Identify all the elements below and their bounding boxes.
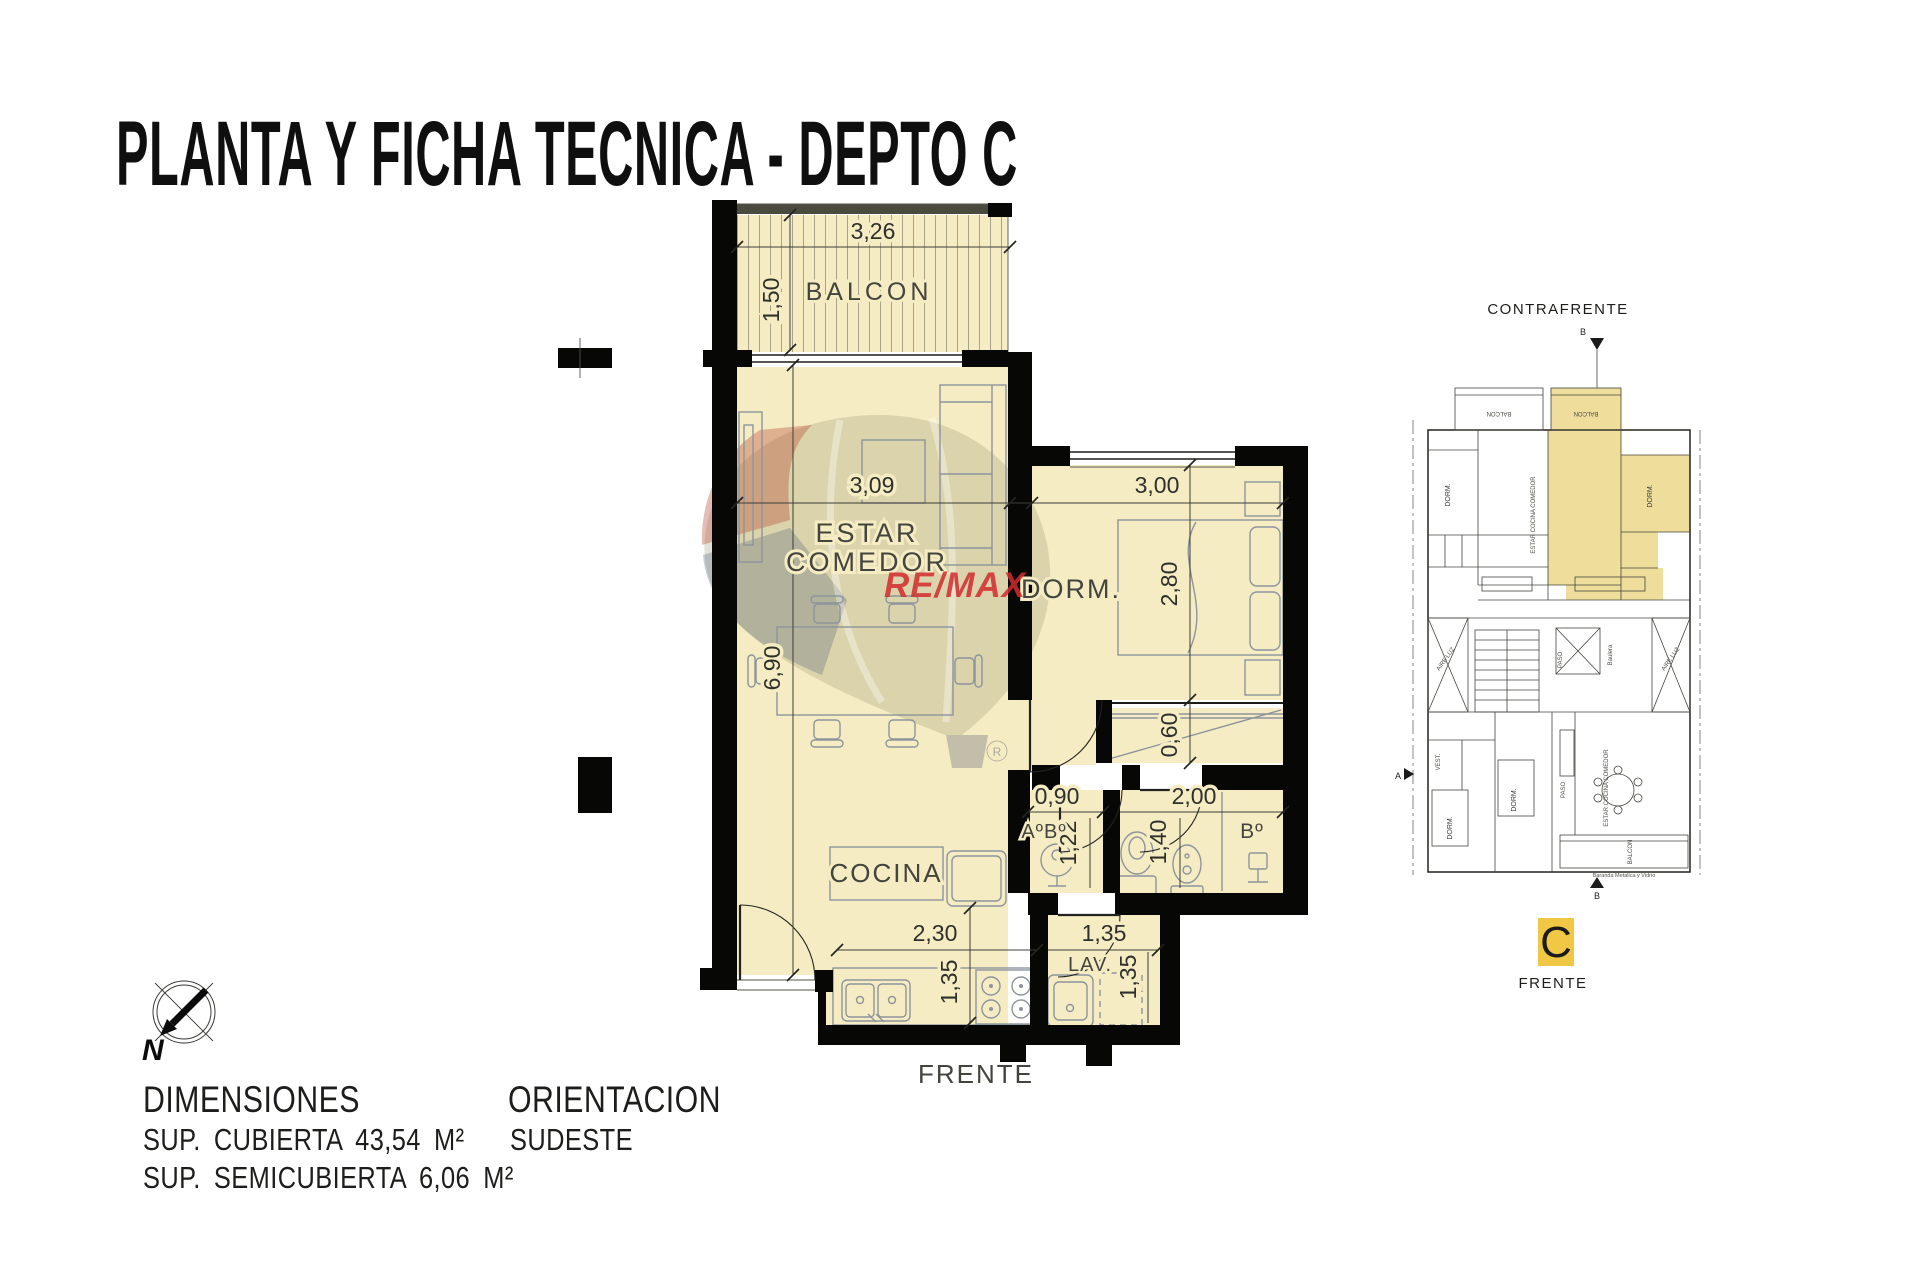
orientation-title: ORIENTACION bbox=[508, 1079, 721, 1121]
site-top-label: CONTRAFRENTE bbox=[1487, 301, 1628, 318]
site-label-balcon: BALCON bbox=[1628, 840, 1634, 865]
unit-c-highlight bbox=[1548, 430, 1690, 600]
dim-closet-depth: 0,60 bbox=[1156, 713, 1182, 758]
site-label-dorm: DORM. bbox=[1511, 788, 1518, 811]
unit-c-balcony-highlight bbox=[1551, 388, 1621, 430]
label-bathroom: Bº bbox=[1240, 820, 1264, 843]
site-label-aire-luz: AIRE LUZ bbox=[1661, 646, 1682, 672]
site-plan: CONTRAFRENTE B bbox=[1380, 240, 1710, 1020]
main-floor-plan: 3,26 1,50 3,09 3,00 6,90 2,80 0,60 0,90 … bbox=[540, 180, 1340, 1100]
remax-brand: RE/MAX bbox=[884, 566, 1028, 605]
section-marker-icon bbox=[1590, 338, 1604, 350]
dim-bedroom-width: 3,00 bbox=[1135, 472, 1180, 498]
dim-laundry-width: 1,35 bbox=[1082, 920, 1127, 946]
site-label-baranda: Baranda Metalica y Vidrio bbox=[1593, 873, 1656, 879]
north-arrow-icon bbox=[172, 990, 206, 1024]
section-marker-bottom: B bbox=[1594, 891, 1600, 901]
site-label-estar: ESTAR COCINA COMEDOR bbox=[1531, 476, 1537, 554]
site-label-dorm: DORM. bbox=[1447, 816, 1454, 839]
dim-kitchen-depth: 1,35 bbox=[936, 960, 962, 1005]
dim-living-width: 3,09 bbox=[850, 472, 895, 498]
dim-balcony-depth: 1,50 bbox=[758, 278, 784, 323]
site-label-baulera: Baulera bbox=[1608, 644, 1614, 665]
orientation-value: SUDESTE bbox=[510, 1122, 633, 1158]
side-marker-icon bbox=[1404, 768, 1414, 780]
compass-north-letter: N bbox=[142, 1034, 165, 1067]
dim-bathroom-width: 2,00 bbox=[1172, 783, 1217, 809]
compass: N bbox=[130, 955, 250, 1075]
dim-kitchen-width: 2,30 bbox=[913, 920, 958, 946]
label-balcony: BALCON bbox=[806, 278, 933, 306]
site-label-paso: PASO bbox=[1561, 782, 1567, 799]
site-label-dorm: DORM. bbox=[1445, 483, 1452, 506]
section-marker-top: B bbox=[1580, 327, 1586, 337]
dim-living-length: 6,90 bbox=[759, 646, 785, 691]
site-label-estar: ESTAR COCINA COMEDOR bbox=[1604, 749, 1610, 827]
label-laundry: LAV. bbox=[1068, 954, 1112, 976]
site-label-balcon: BALCON bbox=[1487, 410, 1512, 416]
dim-bedroom-depth: 2,80 bbox=[1156, 562, 1182, 607]
site-label-dorm: DORM. bbox=[1647, 484, 1654, 507]
side-marker: A bbox=[1395, 771, 1401, 781]
label-bedroom: DORM. bbox=[1021, 574, 1121, 604]
sup-cubierta: SUP. CUBIERTA 43,54 M² bbox=[143, 1122, 465, 1158]
dim-balcony-width: 3,26 bbox=[851, 218, 896, 244]
floor-plan-sheet: PLANTA Y FICHA TECNICA - DEPTO C bbox=[0, 0, 1920, 1280]
dim-toilette-width: 0,90 bbox=[1035, 783, 1080, 809]
label-front: FRENTE bbox=[918, 1059, 1034, 1089]
dim-laundry-depth: 1,35 bbox=[1115, 955, 1141, 1000]
sup-semicubierta: SUP. SEMICUBIERTA 6,06 M² bbox=[143, 1160, 514, 1196]
site-label-vest: VEST. bbox=[1436, 753, 1442, 770]
site-bottom-label: FRENTE bbox=[1519, 975, 1588, 992]
dim-bathroom-depth: 1,40 bbox=[1145, 820, 1171, 865]
dimensions-title: DIMENSIONES bbox=[143, 1079, 360, 1121]
balloon-basket-icon bbox=[946, 735, 988, 768]
site-label-paso: PASO bbox=[1558, 652, 1564, 669]
registered-r: R bbox=[993, 745, 1002, 759]
label-kitchen: COCINA bbox=[829, 858, 942, 888]
label-toilette: AºBº bbox=[1021, 821, 1066, 843]
site-label-balcon: BALCON bbox=[1574, 410, 1599, 416]
unit-badge-letter: C bbox=[1540, 918, 1572, 967]
label-living-1: ESTAR bbox=[815, 518, 918, 548]
